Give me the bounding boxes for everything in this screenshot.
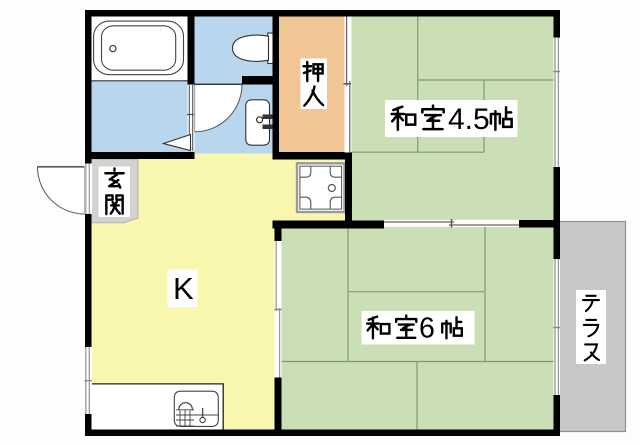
svg-text:K: K [173,271,194,306]
svg-text:4.5: 4.5 [448,103,490,136]
svg-text:6: 6 [419,313,435,345]
